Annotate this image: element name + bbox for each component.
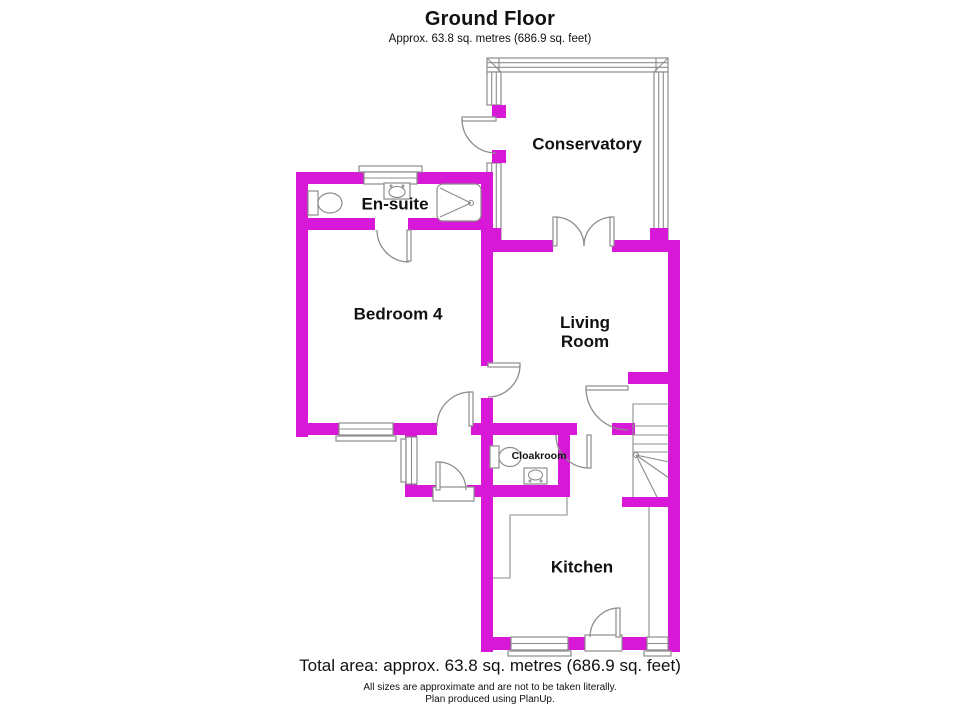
wall-kitchen-bottom-4 bbox=[668, 637, 680, 650]
window-kitchen-small bbox=[644, 637, 671, 656]
door-conservatory-external bbox=[462, 117, 496, 153]
window-ensuite bbox=[359, 166, 422, 184]
wall-lobby-bottom-left bbox=[405, 485, 437, 497]
wall-kitchen-bottom-3 bbox=[620, 637, 648, 650]
door-ensuite bbox=[377, 230, 411, 262]
disclaimer-text: All sizes are approximate and are not to… bbox=[0, 682, 980, 693]
glazed-wall-left-upper bbox=[487, 72, 501, 105]
wall-spine-lower bbox=[481, 398, 493, 652]
window-bedroom bbox=[336, 423, 396, 441]
window-lobby bbox=[401, 437, 417, 484]
room-label-ensuite: En-suite bbox=[361, 195, 428, 214]
window-kitchen-main bbox=[508, 637, 571, 656]
windows bbox=[336, 166, 671, 656]
room-label-cloakroom: Cloakroom bbox=[512, 450, 567, 462]
room-label-kitchen: Kitchen bbox=[551, 558, 613, 577]
wall-stair-bottom bbox=[622, 497, 676, 507]
door-front-entrance bbox=[436, 462, 466, 490]
glazed-wall-right bbox=[654, 72, 668, 240]
basin-symbol-cloakroom bbox=[524, 468, 547, 484]
door-bedroom bbox=[437, 392, 473, 426]
room-label-conservatory: Conservatory bbox=[532, 135, 642, 154]
wall-kitchen-bottom-1 bbox=[481, 637, 512, 650]
wall-spine-upper bbox=[481, 172, 493, 366]
plan-footer: Total area: approx. 63.8 sq. metres (686… bbox=[0, 656, 980, 705]
door-french-conservatory bbox=[553, 217, 614, 246]
wall-junction-right bbox=[650, 228, 668, 240]
toilet-symbol-ensuite bbox=[308, 191, 342, 215]
wall-kitchen-top bbox=[481, 485, 570, 497]
staircase bbox=[633, 404, 669, 497]
floorplan-page: Ground Floor Approx. 63.8 sq. metres (68… bbox=[0, 0, 980, 712]
wall-living-top-left bbox=[481, 240, 553, 252]
wall-cloakroom-top-left bbox=[493, 423, 577, 435]
wall-right bbox=[668, 240, 680, 652]
glazed-wall-top bbox=[487, 58, 668, 72]
credit-text: Plan produced using PlanUp. bbox=[0, 694, 980, 705]
room-label-living-room: Living Room bbox=[550, 313, 620, 351]
shower-symbol bbox=[437, 184, 481, 221]
wall-conservatory-stub-lower bbox=[492, 150, 506, 163]
walls bbox=[296, 105, 680, 652]
wall-left bbox=[296, 172, 308, 437]
wall-ensuite-bottom-left bbox=[296, 218, 375, 230]
door-living-room bbox=[488, 363, 520, 397]
wall-junction-left bbox=[481, 228, 501, 240]
room-label-bedroom4: Bedroom 4 bbox=[354, 305, 443, 324]
floorplan-drawing bbox=[0, 0, 980, 712]
total-area-text: Total area: approx. 63.8 sq. metres (686… bbox=[0, 656, 980, 676]
wall-stair-stub bbox=[628, 372, 680, 384]
door-kitchen-back bbox=[590, 608, 620, 637]
wall-conservatory-stub-upper bbox=[492, 105, 506, 118]
wall-cloakroom-top-right bbox=[612, 423, 635, 435]
